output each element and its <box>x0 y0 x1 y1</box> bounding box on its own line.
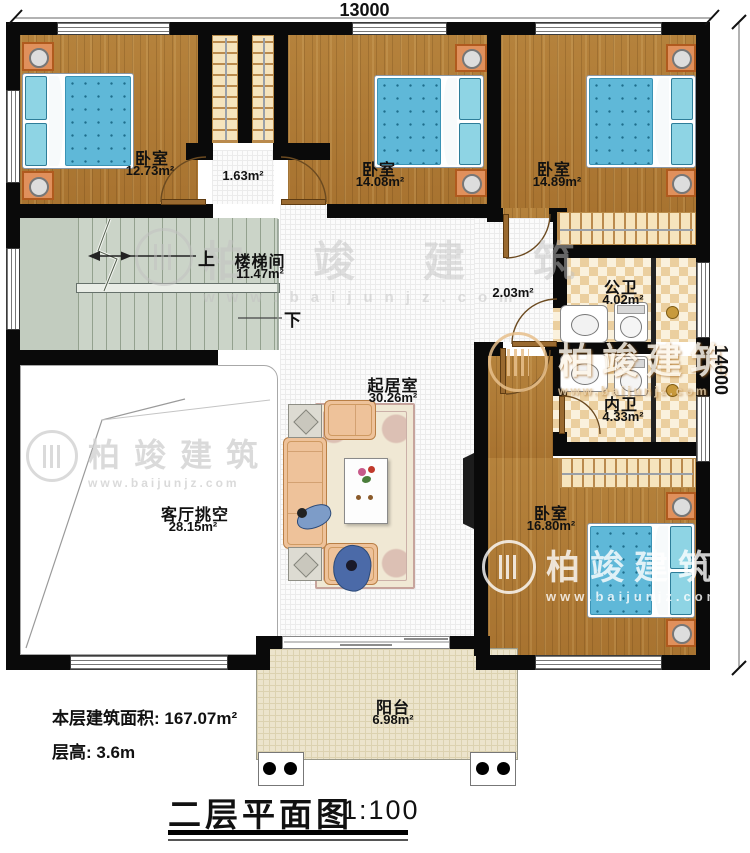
column-dot <box>476 762 489 775</box>
tv-panel <box>463 453 474 529</box>
void-area: 28.15m² <box>169 519 217 534</box>
window-bedroom1-west <box>6 90 20 183</box>
closet-right <box>252 35 274 143</box>
side-table <box>288 404 322 438</box>
plan-title: 二层平面图 <box>168 788 353 836</box>
wall-closet-bedroom2 <box>274 22 288 160</box>
shower-head <box>666 384 679 397</box>
table-item <box>356 495 361 500</box>
stair-down-label: 下 <box>284 306 302 331</box>
flower-decor <box>358 468 366 476</box>
bed-blanket <box>377 78 441 165</box>
washbasin <box>560 354 608 392</box>
bed-pillows <box>671 78 693 165</box>
wall-publicbath-west <box>553 258 567 308</box>
living-void-floor <box>20 365 278 655</box>
window-bedroom3-north <box>535 22 662 35</box>
nightstand <box>22 171 54 200</box>
window-void-south <box>70 655 228 670</box>
balcony-area: 6.98m² <box>372 712 413 727</box>
balcony-sliding-door-sill[interactable] <box>282 636 450 649</box>
window-bedroom4-south <box>535 655 662 670</box>
bedroom1-bed <box>22 73 134 169</box>
window-bedroom1-north <box>57 22 170 35</box>
stair-landing <box>20 218 79 350</box>
door-leaf-ensuite-corridor[interactable] <box>500 348 506 394</box>
door-leaf-bedroom2[interactable] <box>281 199 326 205</box>
door-leaf-bedroom3[interactable] <box>503 214 509 258</box>
bed-pillows <box>25 76 47 166</box>
dimension-right: 14000 <box>710 345 731 395</box>
toilet <box>614 302 648 342</box>
floor-plan: 柏竣建筑 www.baijunjz.com 柏竣建筑 www.baijunjz.… <box>0 0 750 853</box>
closet-left <box>212 35 238 143</box>
bedroom3-area: 14.89m² <box>533 174 581 189</box>
wall-bedroom1-south <box>6 204 213 218</box>
person-head <box>346 560 357 571</box>
ensuite-corridor-floor <box>488 356 553 458</box>
hallway-area: 2.03m² <box>492 285 533 300</box>
footer-area-text: 本层建筑面积: 167.07m² <box>52 704 237 729</box>
bedroom3-bed <box>586 75 696 168</box>
living-area: 30.26m² <box>369 390 417 405</box>
bed-blanket <box>589 78 653 165</box>
bed-pillows <box>459 78 481 165</box>
nightstand <box>666 619 696 647</box>
column-dot <box>263 762 276 775</box>
wall-bedroom1-closet <box>198 22 212 160</box>
wall-closet-bottom-right <box>273 143 330 160</box>
bedroom4-area: 16.80m² <box>527 518 575 533</box>
wall-stair-south <box>6 350 218 365</box>
table-item <box>368 495 373 500</box>
wall-bedroom3-south-a <box>487 208 503 222</box>
wall-living-east <box>474 342 488 656</box>
nightstand <box>666 492 696 520</box>
wall-closet-bottom-left <box>186 143 213 160</box>
nightstand <box>22 42 54 71</box>
hallway-floor <box>474 218 553 342</box>
window-bedroom2-north <box>352 22 447 35</box>
wall-ensuite-south <box>553 442 696 456</box>
person-head <box>297 508 307 518</box>
nightstand <box>455 169 487 197</box>
nightstand <box>666 169 696 197</box>
column-dot <box>497 762 510 775</box>
bed-pillows <box>670 526 692 615</box>
bed-sheet <box>654 526 668 615</box>
bedroom4-wardrobe <box>559 458 696 488</box>
bedroom2-area: 14.08m² <box>356 174 404 189</box>
bedroom2-bed <box>374 75 484 168</box>
window-ensuite-east <box>696 396 710 462</box>
sofa-armchair-top <box>324 400 376 440</box>
sofa-long <box>283 437 327 549</box>
stairwell-area: 11.47m² <box>236 266 284 281</box>
ensuite-bath-area: 4.33m² <box>602 409 643 424</box>
bed-blanket <box>65 76 131 166</box>
closet-hall-area: 1.63m² <box>222 168 263 183</box>
wall-wardrobe3-south <box>553 245 696 258</box>
bedroom3-wardrobe <box>557 212 696 245</box>
public-bath-area: 4.02m² <box>602 292 643 307</box>
bedroom4-bed <box>587 523 695 618</box>
door-leaf-publicbath[interactable] <box>512 341 557 347</box>
coffee-table <box>344 458 388 524</box>
dim-tick-rt <box>732 15 746 29</box>
title-underline-thick <box>168 830 408 835</box>
shower-head <box>666 306 679 319</box>
washbasin <box>560 305 608 343</box>
wall-bedroom2-south <box>327 204 493 218</box>
side-table <box>288 547 322 581</box>
wall-sill-left <box>266 636 282 649</box>
dim-tick-rb <box>732 661 746 675</box>
plan-scale: 1:100 <box>342 795 420 826</box>
bed-blanket <box>590 526 652 615</box>
dimension-top: 13000 <box>322 0 407 21</box>
door-leaf-bedroom1[interactable] <box>161 199 206 205</box>
title-underline-thin <box>168 839 408 841</box>
wall-closet-mid <box>238 35 252 143</box>
bed-sheet <box>443 78 457 165</box>
flower-decor <box>368 466 375 473</box>
toilet <box>614 356 648 396</box>
wall-bedroom2-bedroom3 <box>487 22 501 208</box>
bedroom1-area: 12.73m² <box>126 163 174 178</box>
door-leaf-ensuite[interactable] <box>559 396 565 434</box>
nightstand <box>666 44 696 72</box>
stair-up-label: 上 <box>198 245 216 270</box>
nightstand <box>455 44 487 72</box>
window-publicbath-east <box>696 262 710 338</box>
wall-bath-divider <box>553 342 655 354</box>
footer-height-text: 层高: 3.6m <box>52 738 135 763</box>
stair-handrail <box>76 283 280 293</box>
wall-outer-right <box>696 22 710 670</box>
wall-bath-inner <box>651 258 656 442</box>
window-stair-west <box>6 248 20 330</box>
column-dot <box>284 762 297 775</box>
bed-sheet <box>49 76 63 166</box>
bed-sheet <box>655 78 669 165</box>
